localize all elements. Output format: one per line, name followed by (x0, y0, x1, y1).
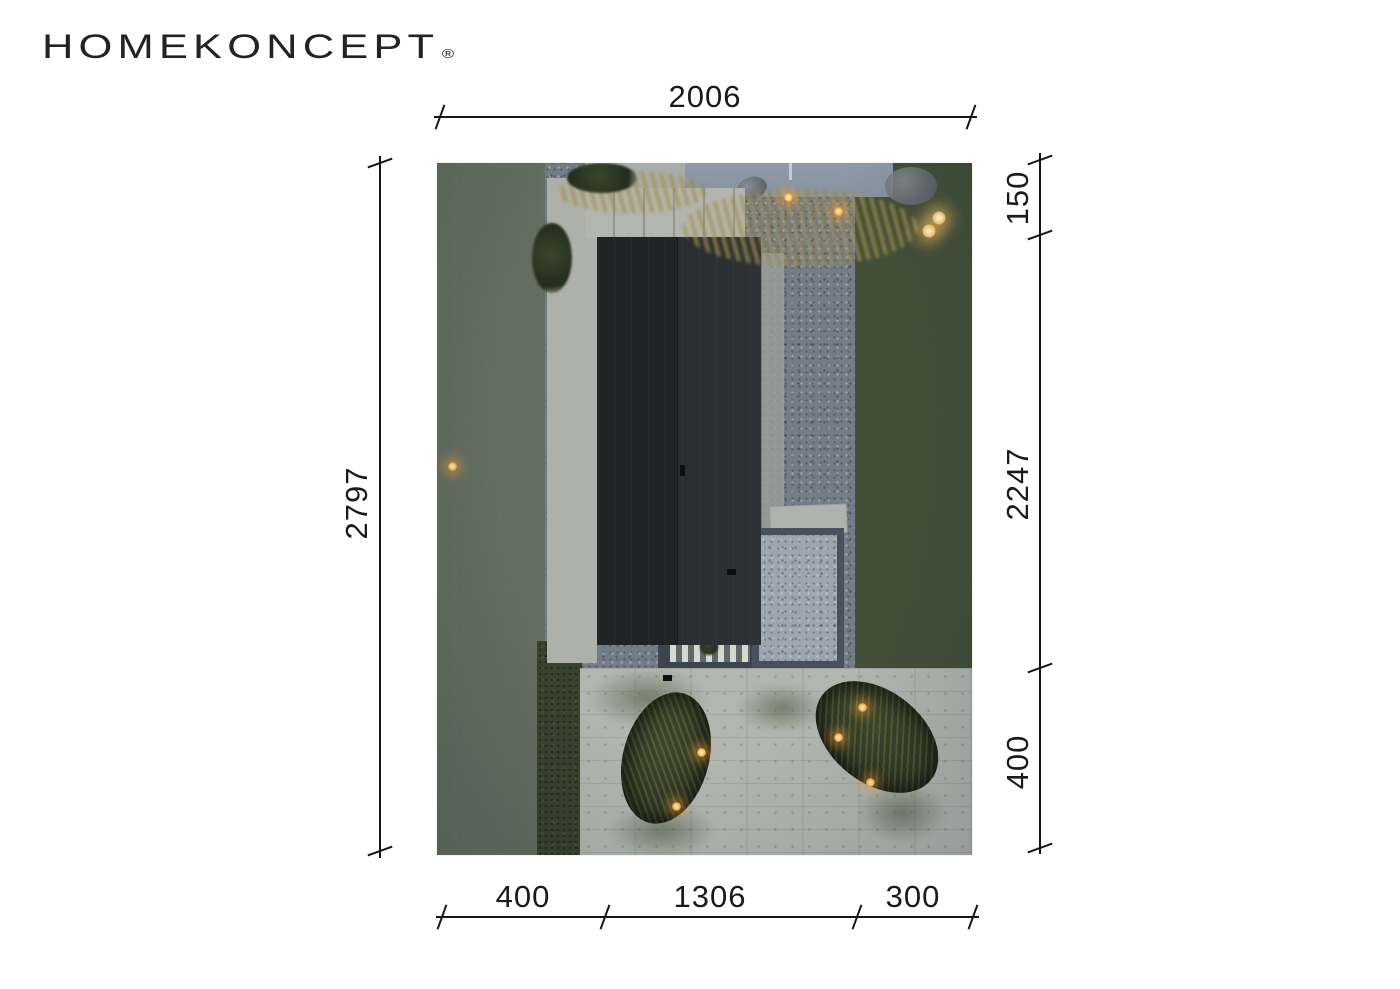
brand-logo: HOMEKONCEPT® (42, 28, 454, 67)
dim-label-right-150: 150 (1000, 171, 1036, 226)
dim-label-bottom-300: 300 (886, 879, 941, 915)
dusk-vignette (437, 163, 972, 855)
dim-line-right (1039, 153, 1041, 854)
dim-label-left: 2797 (339, 467, 375, 540)
dim-line-left (379, 156, 381, 858)
dim-label-bottom-1306: 1306 (674, 879, 747, 915)
site-plan-render (437, 163, 972, 855)
dim-line-top (434, 116, 977, 118)
brand-logo-text: HOMEKONCEPT (42, 28, 439, 66)
dim-line-bottom (436, 916, 979, 918)
dim-label-top: 2006 (669, 79, 742, 115)
dim-label-bottom-400: 400 (496, 879, 551, 915)
dim-label-right-400: 400 (1000, 735, 1036, 790)
dim-label-right-2247: 2247 (1000, 448, 1036, 521)
registered-trademark-icon: ® (442, 46, 454, 61)
